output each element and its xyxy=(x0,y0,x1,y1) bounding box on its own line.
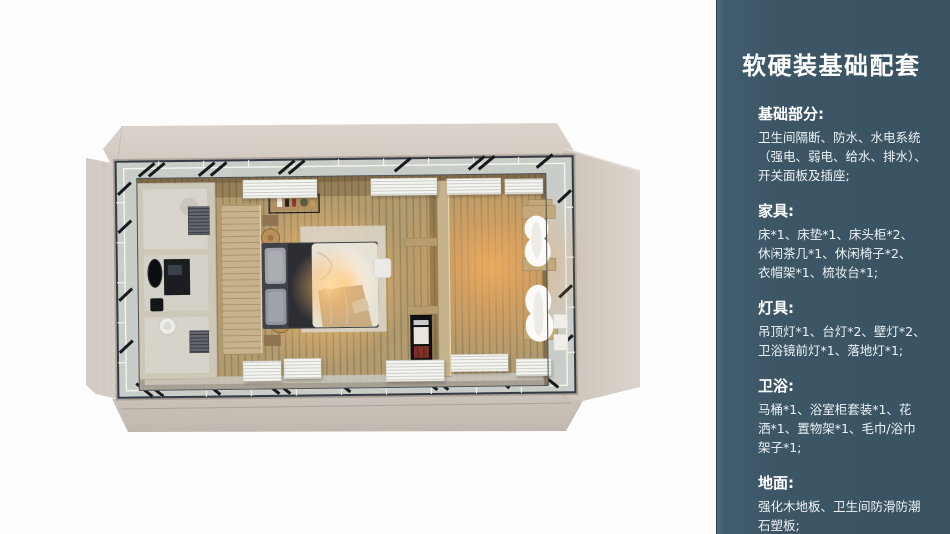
room-interior xyxy=(137,170,589,390)
page: 软硬装基础配套 基础部分: 卫生间隔断、防水、水电系统 （强电、弱电、给水、排水… xyxy=(0,0,950,534)
container xyxy=(114,154,588,399)
package-section-lighting: 灯具: 吊顶灯*1、台灯*2、壁灯*2、 卫浴镜前灯*1、落地灯*1; xyxy=(758,297,937,360)
bathroom-door-mat xyxy=(204,371,222,380)
info-panel: 软硬装基础配套 基础部分: 卫生间隔断、防水、水电系统 （强电、弱电、给水、排水… xyxy=(716,0,950,534)
section-body: 强化木地板、卫生间防滑防潮 石塑板; xyxy=(758,497,937,534)
section-heading: 卫浴: xyxy=(758,375,937,396)
walkway-box-1 xyxy=(553,314,567,328)
section-body: 吊顶灯*1、台灯*2、壁灯*2、 卫浴镜前灯*1、落地灯*1; xyxy=(758,322,937,360)
package-section-bathroom: 卫浴: 马桶*1、浴室柜套装*1、花 洒*1、置物架*1、毛巾/浴巾 架子*1; xyxy=(758,375,937,457)
headboard-wardrobe xyxy=(221,204,263,354)
section-body: 床*1、床垫*1、床头柜*2、 休闲茶几*1、休闲椅子*2、 衣帽架*1、梳妆台… xyxy=(758,225,937,282)
section-body: 马桶*1、浴室柜套装*1、花 洒*1、置物架*1、毛巾/浴巾 架子*1; xyxy=(758,400,937,457)
vanity-mirror xyxy=(148,259,162,287)
package-section-furniture: 家具: 床*1、床垫*1、床头柜*2、 休闲茶几*1、休闲椅子*2、 衣帽架*1… xyxy=(758,200,937,282)
floating-shelf-1 xyxy=(405,238,438,246)
walkway-box-2 xyxy=(554,334,568,350)
towel-radiator-bottom xyxy=(190,331,209,353)
section-heading: 家具: xyxy=(758,200,937,221)
towel-radiator-top xyxy=(188,207,209,235)
section-heading: 基础部分: xyxy=(758,103,937,124)
section-body: 卫生间隔断、防水、水电系统 （强电、弱电、给水、排水）、 开关面板及插座; xyxy=(758,128,937,185)
package-section-basics: 基础部分: 卫生间隔断、防水、水电系统 （强电、弱电、给水、排水）、 开关面板及… xyxy=(758,103,937,185)
floating-shelf-2 xyxy=(407,306,438,314)
section-heading: 灯具: xyxy=(758,297,937,318)
package-section-flooring: 地面: 强化木地板、卫生间防滑防潮 石塑板; xyxy=(758,472,937,534)
vanity-stool xyxy=(150,298,163,311)
tea-table xyxy=(374,258,391,277)
floorplan-render xyxy=(0,0,716,534)
panel-title: 软硬装基础配套 xyxy=(742,46,937,81)
display-cabinet xyxy=(410,315,432,361)
nightstand-top xyxy=(262,215,278,226)
vanity-table xyxy=(164,259,190,295)
nightstand-bottom xyxy=(264,335,281,346)
section-heading: 地面: xyxy=(758,472,937,493)
